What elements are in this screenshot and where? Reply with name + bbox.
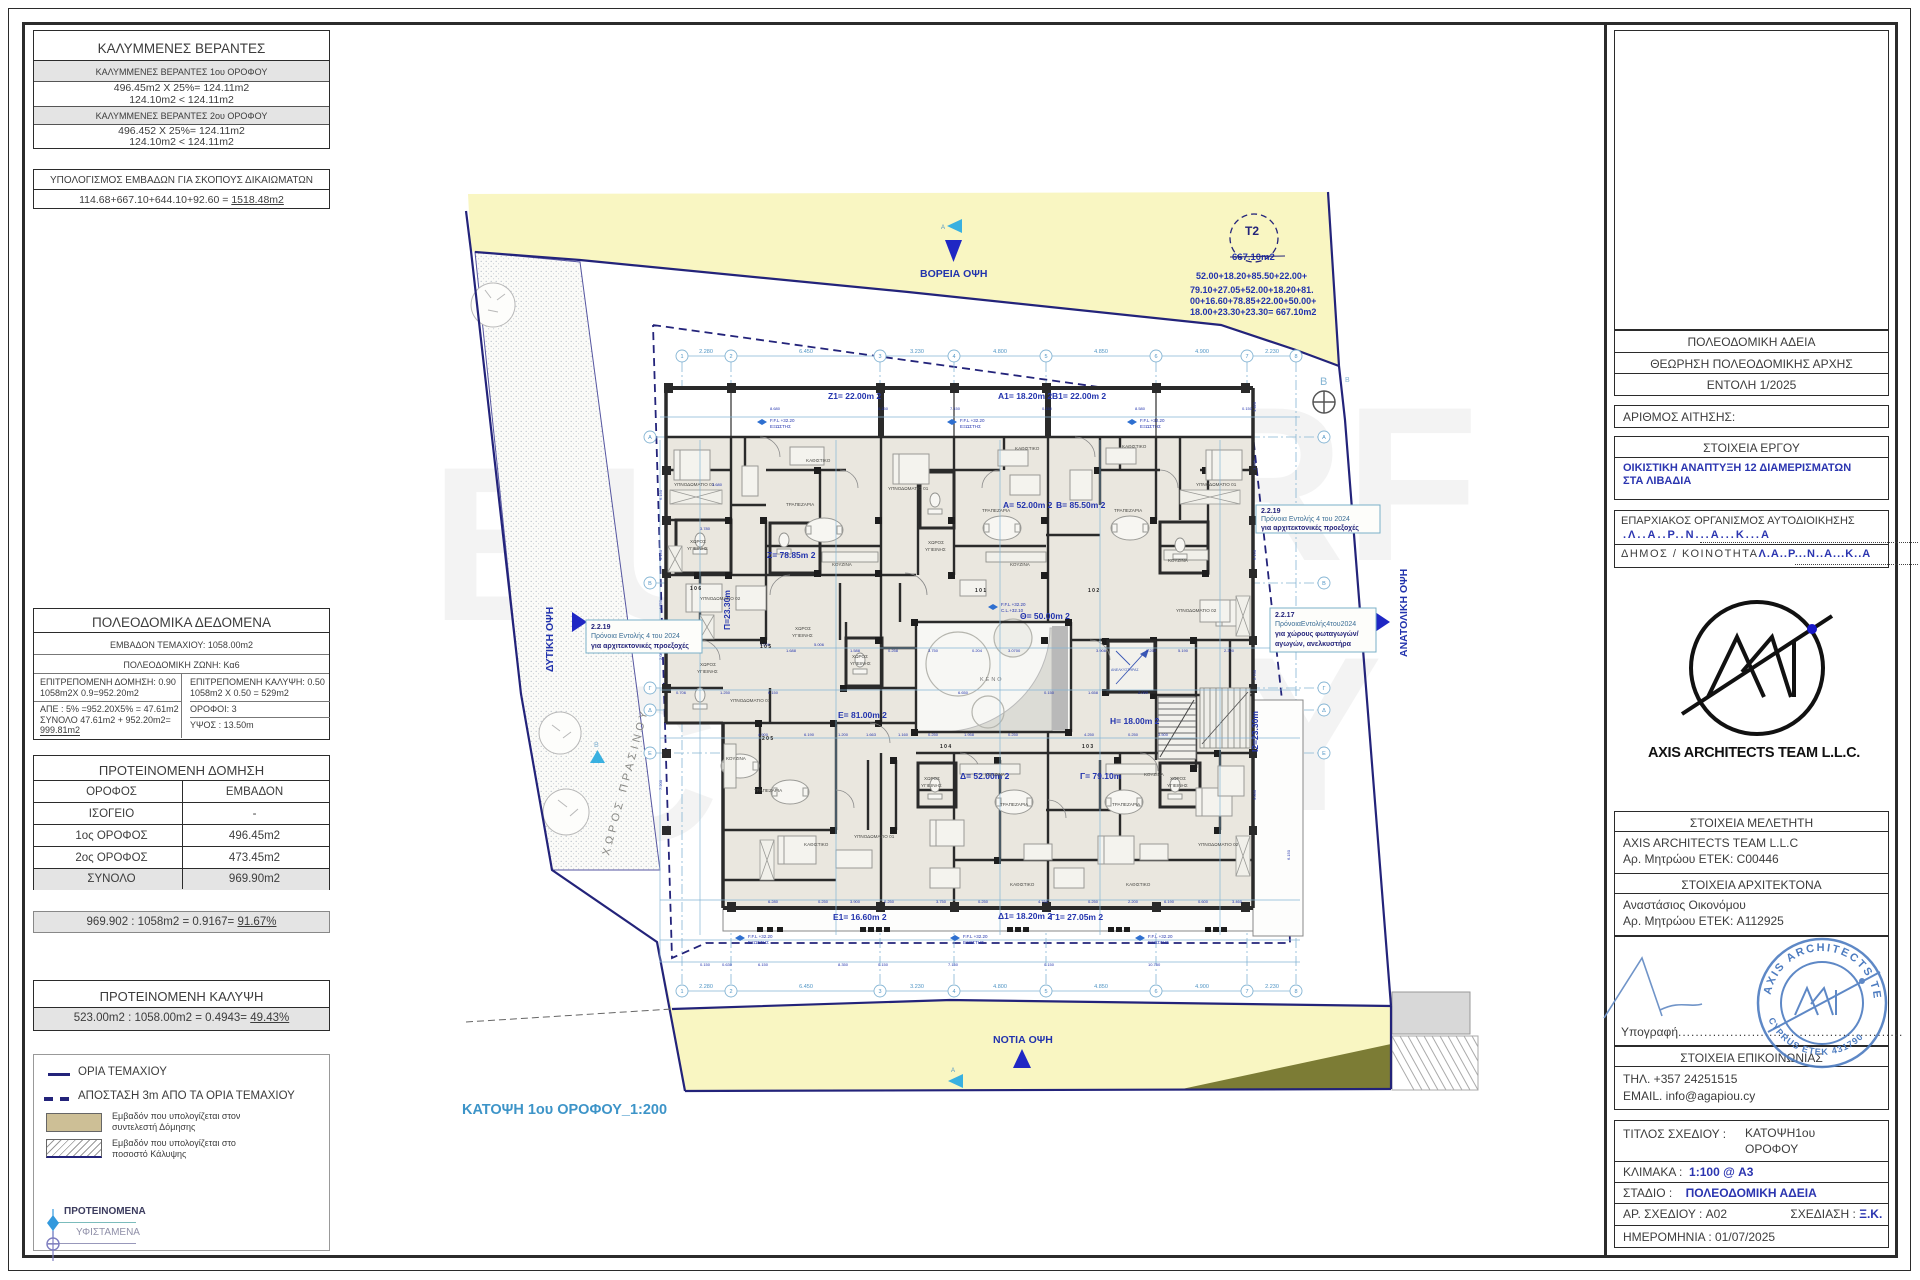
- svg-text:1.250: 1.250: [720, 690, 731, 695]
- svg-text:ΧΩΡΟΣ: ΧΩΡΟΣ: [700, 662, 716, 667]
- svg-text:Πρόνοια Εντολής 4 του 2024: Πρόνοια Εντολής 4 του 2024: [1261, 515, 1350, 523]
- svg-text:3: 3: [878, 354, 881, 360]
- svg-text:0.630: 0.630: [722, 962, 733, 967]
- svg-text:6.280: 6.280: [768, 899, 779, 904]
- svg-text:7: 7: [1245, 354, 1248, 360]
- svg-text:Γ: Γ: [648, 686, 651, 692]
- svg-text:4: 4: [952, 354, 955, 360]
- svg-text:3.908: 3.908: [1096, 648, 1107, 653]
- svg-text:ΚΑΘΙΣΤΙΚΟ: ΚΑΘΙΣΤΙΚΟ: [1122, 444, 1147, 449]
- svg-text:ΧΩΡΟΣ: ΧΩΡΟΣ: [928, 540, 944, 545]
- svg-text:0.150: 0.150: [878, 406, 889, 411]
- svg-text:για χώρους φωταγωγών/: για χώρους φωταγωγών/: [1275, 631, 1359, 638]
- svg-text:ΔΥΤΙΚΗ ΟΨΗ: ΔΥΤΙΚΗ ΟΨΗ: [544, 607, 556, 672]
- svg-text:00+16.60+78.85+22.00+50.00+: 00+16.60+78.85+22.00+50.00+: [1190, 296, 1316, 306]
- svg-text:ΚΑΘΙΣΤΙΚΟ: ΚΑΘΙΣΤΙΚΟ: [1015, 446, 1040, 451]
- svg-text:6.650: 6.650: [958, 690, 969, 695]
- svg-text:1: 1: [680, 989, 683, 995]
- svg-text:6.150: 6.150: [758, 962, 769, 967]
- svg-text:ΚΑΤΟΨΗ 1ου ΟΡΟΦΟΥ_1:200: ΚΑΤΟΨΗ 1ου ΟΡΟΦΟΥ_1:200: [462, 1102, 667, 1118]
- svg-text:4.850: 4.850: [1094, 349, 1108, 355]
- svg-text:Δ1= 18.20m 2: Δ1= 18.20m 2: [998, 911, 1052, 921]
- svg-text:2.280: 2.280: [699, 349, 713, 355]
- svg-text:2.2.19: 2.2.19: [591, 624, 611, 631]
- svg-text:3: 3: [878, 989, 881, 995]
- svg-text:ΥΠΝΟΔΩΜΑΤΙΟ 01: ΥΠΝΟΔΩΜΑΤΙΟ 01: [854, 834, 895, 839]
- svg-text:ΚΑΘΙΣΤΙΚΟ: ΚΑΘΙΣΤΙΚΟ: [1010, 882, 1035, 887]
- svg-text:0.250: 0.250: [928, 732, 939, 737]
- svg-text:B: B: [1320, 376, 1327, 388]
- svg-text:ΕΞΩΣΤΗΣ: ΕΞΩΣΤΗΣ: [960, 424, 981, 429]
- svg-text:1.420: 1.420: [1252, 401, 1257, 412]
- svg-text:3.750: 3.750: [936, 899, 947, 904]
- svg-text:ΥΓΙΕΙΝΗΣ: ΥΓΙΕΙΝΗΣ: [921, 783, 942, 788]
- svg-text:667.10m2: 667.10m2: [1232, 252, 1275, 263]
- svg-text:79.10+27.05+52.00+18.20+81.: 79.10+27.05+52.00+18.20+81.: [1190, 285, 1314, 295]
- svg-text:Z= 78.85m 2: Z= 78.85m 2: [767, 550, 816, 560]
- svg-text:B: B: [1345, 377, 1350, 384]
- svg-text:4.750: 4.750: [658, 599, 663, 610]
- svg-text:A: A: [1322, 435, 1326, 441]
- svg-text:0.150: 0.150: [700, 962, 711, 967]
- svg-text:6: 6: [1154, 989, 1157, 995]
- svg-text:1 0 3: 1 0 3: [1082, 744, 1093, 750]
- svg-text:3.230: 3.230: [910, 349, 924, 355]
- svg-text:2: 2: [729, 989, 732, 995]
- svg-text:5.190: 5.190: [1178, 648, 1189, 653]
- svg-text:0.250: 0.250: [1146, 648, 1157, 653]
- svg-text:ΕΞΩΣΤΗΣ: ΕΞΩΣΤΗΣ: [748, 940, 769, 945]
- svg-text:F.F.L +32.20: F.F.L +32.20: [963, 934, 988, 939]
- svg-text:1 0 6: 1 0 6: [690, 586, 701, 592]
- svg-text:A: A: [941, 225, 945, 231]
- svg-text:0.150: 0.150: [878, 962, 889, 967]
- svg-text:ΥΓΙΕΙΝΗΣ: ΥΓΙΕΙΝΗΣ: [687, 546, 708, 551]
- svg-text:E: E: [648, 751, 652, 757]
- svg-text:Γ1= 27.05m 2: Γ1= 27.05m 2: [1050, 912, 1103, 922]
- svg-text:0.204: 0.204: [972, 648, 983, 653]
- svg-text:4.760: 4.760: [1038, 899, 1049, 904]
- svg-text:1.658: 1.658: [1088, 690, 1099, 695]
- svg-text:8: 8: [1294, 354, 1297, 360]
- svg-text:3.500: 3.500: [1158, 732, 1169, 737]
- svg-text:A: A: [951, 1068, 955, 1074]
- svg-text:ΚΟΥΖΙΝΑ: ΚΟΥΖΙΝΑ: [832, 562, 853, 567]
- svg-text:0.706: 0.706: [676, 690, 687, 695]
- svg-text:Z1= 22.00m 2: Z1= 22.00m 2: [828, 391, 881, 401]
- svg-text:0.250: 0.250: [818, 899, 829, 904]
- svg-text:ΥΠΝΟΔΩΜΑΤΙΟ 02: ΥΠΝΟΔΩΜΑΤΙΟ 02: [1198, 842, 1239, 847]
- svg-text:6.190: 6.190: [1164, 899, 1175, 904]
- svg-text:F.F.L +32.20: F.F.L +32.20: [1140, 418, 1165, 423]
- svg-text:ΑΝΕΛΚΥΣΤΗΡΑΣ: ΑΝΕΛΚΥΣΤΗΡΑΣ: [1111, 668, 1139, 672]
- svg-text:6.150: 6.150: [768, 690, 779, 695]
- svg-text:0.600: 0.600: [1198, 899, 1209, 904]
- svg-text:2 0 5: 2 0 5: [762, 736, 773, 742]
- svg-text:E: E: [1322, 751, 1326, 757]
- svg-text:ΕΞΩΣΤΗΣ: ΕΞΩΣΤΗΣ: [963, 940, 984, 945]
- svg-text:3.460: 3.460: [1232, 899, 1243, 904]
- svg-text:E= 81.00m 2: E= 81.00m 2: [838, 710, 887, 720]
- svg-text:8.350: 8.350: [838, 962, 849, 967]
- svg-text:1.200: 1.200: [838, 732, 849, 737]
- svg-text:10.750: 10.750: [1148, 962, 1161, 967]
- svg-text:ΥΠΝΟΔΩΜΑΤΙΟ 01: ΥΠΝΟΔΩΜΑΤΙΟ 01: [1196, 482, 1237, 487]
- svg-text:2.230: 2.230: [1265, 984, 1279, 990]
- svg-text:0.258: 0.258: [888, 648, 899, 653]
- svg-text:4.800: 4.800: [993, 349, 1007, 355]
- svg-text:0.250: 0.250: [1088, 899, 1099, 904]
- svg-text:6.450: 6.450: [799, 984, 813, 990]
- svg-text:B= 85.50m 2: B= 85.50m 2: [1056, 500, 1106, 510]
- svg-text:F.F.L +32.20: F.F.L +32.20: [748, 934, 773, 939]
- svg-text:F.F.L +32.20: F.F.L +32.20: [960, 418, 985, 423]
- svg-text:ΚΟΥΖΙΝΑ: ΚΟΥΖΙΝΑ: [1168, 558, 1189, 563]
- svg-text:1 0 5: 1 0 5: [760, 644, 771, 650]
- svg-text:ΝΟΤΙΑ ΟΨΗ: ΝΟΤΙΑ ΟΨΗ: [993, 1034, 1053, 1046]
- svg-text:ΧΩΡΟΣ: ΧΩΡΟΣ: [924, 776, 940, 781]
- svg-text:2.230: 2.230: [1265, 349, 1279, 355]
- svg-text:4.900: 4.900: [1195, 984, 1209, 990]
- svg-text:8.680: 8.680: [770, 406, 781, 411]
- svg-text:0.250: 0.250: [978, 899, 989, 904]
- svg-text:3.230: 3.230: [910, 984, 924, 990]
- svg-text:1.588: 1.588: [850, 648, 861, 653]
- svg-text:2.200: 2.200: [1128, 899, 1139, 904]
- svg-text:ΥΠΝΟΔΩΜΑΤΙΟ 01: ΥΠΝΟΔΩΜΑΤΙΟ 01: [674, 482, 715, 487]
- svg-text:1.160: 1.160: [898, 732, 909, 737]
- svg-text:1.663: 1.663: [866, 732, 877, 737]
- svg-text:F.F.L +32.20: F.F.L +32.20: [1001, 602, 1026, 607]
- svg-text:3.900: 3.900: [850, 899, 861, 904]
- svg-text:3.750: 3.750: [928, 648, 939, 653]
- svg-text:H= 18.00m 2: H= 18.00m 2: [1110, 716, 1160, 726]
- svg-text:18.00+23.30+23.30= 667.10m2: 18.00+23.30+23.30= 667.10m2: [1190, 307, 1316, 317]
- svg-text:ΥΓΙΕΙΝΗΣ: ΥΓΙΕΙΝΗΣ: [925, 547, 946, 552]
- svg-text:52.00+18.20+85.50+22.00+: 52.00+18.20+85.50+22.00+: [1196, 271, 1307, 281]
- svg-text:αγωγών, ανελκυστήρα: αγωγών, ανελκυστήρα: [1275, 640, 1352, 648]
- svg-text:ΧΩΡΟΣ: ΧΩΡΟΣ: [690, 539, 706, 544]
- svg-text:Θ= 50.00m 2: Θ= 50.00m 2: [1020, 611, 1070, 621]
- svg-text:ΥΓΙΕΙΝΗΣ: ΥΓΙΕΙΝΗΣ: [792, 633, 813, 638]
- svg-text:3.780: 3.780: [700, 526, 711, 531]
- svg-text:3.0700: 3.0700: [1008, 648, 1021, 653]
- svg-text:7.150: 7.150: [950, 406, 961, 411]
- svg-text:0.250: 0.250: [1008, 732, 1019, 737]
- svg-text:ΠρόνοιαΕντολής4του2024: ΠρόνοιαΕντολής4του2024: [1275, 620, 1356, 628]
- svg-text:για αρχιτεκτονικές προεξοχές: για αρχιτεκτονικές προεξοχές: [1261, 525, 1359, 532]
- svg-text:ΧΩΡΟΣ: ΧΩΡΟΣ: [1170, 776, 1186, 781]
- svg-text:0.150: 0.150: [1042, 406, 1053, 411]
- svg-text:ΧΩΡΟΣ: ΧΩΡΟΣ: [795, 626, 811, 631]
- svg-text:1.958: 1.958: [964, 732, 975, 737]
- svg-text:ΤΡΑΠΕΖΑΡΙΑ: ΤΡΑΠΕΖΑΡΙΑ: [1114, 508, 1143, 513]
- svg-text:A= 52.00m 2: A= 52.00m 2: [1003, 500, 1053, 510]
- svg-text:ΧΩΡΟΣ: ΧΩΡΟΣ: [852, 654, 868, 659]
- svg-text:ΤΡΑΠΕΖΑΡΙΑ: ΤΡΑΠΕΖΑΡΙΑ: [982, 508, 1011, 513]
- svg-text:ΤΡΑΠΕΖΑΡΙΑ: ΤΡΑΠΕΖΑΡΙΑ: [1112, 802, 1141, 807]
- svg-text:1.688: 1.688: [786, 648, 797, 653]
- svg-text:8.580: 8.580: [1135, 406, 1146, 411]
- svg-text:Γ= 79.10m: Γ= 79.10m: [1080, 771, 1122, 781]
- svg-text:7.150: 7.150: [948, 962, 959, 967]
- svg-text:6.190: 6.190: [804, 732, 815, 737]
- svg-text:ΤΡΑΠΕΖΑΡΙΑ: ΤΡΑΠΕΖΑΡΙΑ: [786, 502, 815, 507]
- svg-text:1: 1: [680, 354, 683, 360]
- svg-text:ΕΞΩΣΤΗΣ: ΕΞΩΣΤΗΣ: [1148, 940, 1169, 945]
- svg-text:1 0 4: 1 0 4: [940, 744, 951, 750]
- svg-text:ΚΑΘΙΣΤΙΚΟ: ΚΑΘΙΣΤΙΚΟ: [806, 458, 831, 463]
- svg-text:6.150: 6.150: [1286, 849, 1291, 860]
- svg-text:ΥΠΝΟΔΩΜΑΤΙΟ 02: ΥΠΝΟΔΩΜΑΤΙΟ 02: [1176, 608, 1217, 613]
- svg-text:2.280: 2.280: [699, 984, 713, 990]
- svg-text:6.150: 6.150: [658, 489, 663, 500]
- svg-text:E1= 16.60m 2: E1= 16.60m 2: [833, 912, 887, 922]
- svg-text:T2: T2: [1245, 224, 1259, 238]
- svg-text:5: 5: [1044, 989, 1047, 995]
- svg-text:6: 6: [1154, 354, 1157, 360]
- svg-text:ΚΟΥΖΙΝΑ: ΚΟΥΖΙΝΑ: [726, 756, 747, 761]
- svg-text:ΑΝΑΤΟΛΙΚΗ ΟΨΗ: ΑΝΑΤΟΛΙΚΗ ΟΨΗ: [1398, 569, 1410, 657]
- svg-text:3.800: 3.800: [1252, 789, 1257, 800]
- svg-text:F.F.L +32.20: F.F.L +32.20: [770, 418, 795, 423]
- svg-text:4.900: 4.900: [1195, 349, 1209, 355]
- svg-text:4.250: 4.250: [1084, 732, 1095, 737]
- svg-text:Πρόνοια Εντολής 4 του 2024: Πρόνοια Εντολής 4 του 2024: [591, 632, 680, 640]
- svg-text:ΕΞΩΣΤΗΣ: ΕΞΩΣΤΗΣ: [770, 424, 791, 429]
- svg-text:ΚΟΥΖΙΝΑ: ΚΟΥΖΙΝΑ: [1010, 562, 1031, 567]
- svg-text:Γ: Γ: [1322, 686, 1325, 692]
- svg-text:ΚΑΘΙΣΤΙΚΟ: ΚΑΘΙΣΤΙΚΟ: [1126, 882, 1151, 887]
- svg-text:ΤΡΑΠΕΖΑΡΙΑ: ΤΡΑΠΕΖΑΡΙΑ: [754, 788, 783, 793]
- svg-text:2.2.17: 2.2.17: [1275, 612, 1295, 619]
- svg-text:8: 8: [1294, 989, 1297, 995]
- svg-text:ΚΑΘΙΣΤΙΚΟ: ΚΑΘΙΣΤΙΚΟ: [804, 842, 829, 847]
- svg-text:I2=23.30m: I2=23.30m: [1250, 711, 1260, 752]
- svg-text:0.250: 0.250: [1128, 732, 1139, 737]
- svg-text:0.150: 0.150: [658, 549, 663, 560]
- svg-text:6.190: 6.190: [1252, 549, 1257, 560]
- svg-text:0.150: 0.150: [1044, 690, 1055, 695]
- svg-text:2.300: 2.300: [1224, 648, 1235, 653]
- svg-text:4.850: 4.850: [1094, 984, 1108, 990]
- svg-text:5.006: 5.006: [814, 642, 825, 647]
- svg-text:ΥΓΙΕΙΝΗΣ: ΥΓΙΕΙΝΗΣ: [697, 669, 718, 674]
- svg-text:7: 7: [1245, 989, 1248, 995]
- svg-text:0.250: 0.250: [884, 899, 895, 904]
- svg-text:F.F.L +32.20: F.F.L +32.20: [1148, 934, 1173, 939]
- svg-text:ΕΞΩΣΤΗΣ: ΕΞΩΣΤΗΣ: [1140, 424, 1161, 429]
- svg-text:1 0 2: 1 0 2: [1088, 588, 1099, 594]
- svg-text:B: B: [594, 742, 599, 749]
- svg-text:ΚΟΥΖΙΝΑ: ΚΟΥΖΙΝΑ: [1144, 772, 1165, 777]
- svg-text:B: B: [648, 581, 652, 587]
- svg-text:ΥΠΝΟΔΩΜΑΤΙΟ 01: ΥΠΝΟΔΩΜΑΤΙΟ 01: [888, 486, 929, 491]
- svg-text:για αρχιτεκτονικές προεξοχές: για αρχιτεκτονικές προεξοχές: [591, 643, 689, 650]
- svg-text:ΥΠΝΟΔΩΜΑΤΙΟ 01: ΥΠΝΟΔΩΜΑΤΙΟ 01: [730, 698, 771, 703]
- svg-text:ΥΓΙΕΙΝΗΣ: ΥΓΙΕΙΝΗΣ: [850, 661, 871, 666]
- svg-text:Δ: Δ: [1322, 708, 1326, 714]
- svg-text:4.800: 4.800: [993, 984, 1007, 990]
- svg-text:5: 5: [1044, 354, 1047, 360]
- svg-text:2.069: 2.069: [1138, 690, 1149, 695]
- svg-text:A: A: [648, 435, 652, 441]
- svg-text:ΒΟΡΕΙΑ ΟΨΗ: ΒΟΡΕΙΑ ΟΨΗ: [920, 268, 987, 280]
- svg-text:3.680: 3.680: [712, 482, 723, 487]
- svg-text:0.150: 0.150: [1044, 962, 1055, 967]
- svg-text:B1= 22.00m 2: B1= 22.00m 2: [1052, 391, 1106, 401]
- svg-text:ΚΟΥΖΙΝΑ: ΚΟΥΖΙΝΑ: [985, 772, 1006, 777]
- svg-text:ΥΠΝΟΔΩΜΑΤΙΟ 02: ΥΠΝΟΔΩΜΑΤΙΟ 02: [700, 596, 741, 601]
- svg-text:6.450: 6.450: [799, 349, 813, 355]
- svg-text:7.200: 7.200: [658, 779, 663, 790]
- svg-text:4: 4: [952, 989, 955, 995]
- svg-text:A1= 18.20m 2: A1= 18.20m 2: [998, 391, 1052, 401]
- svg-text:2.2.19: 2.2.19: [1261, 508, 1281, 515]
- svg-text:2: 2: [729, 354, 732, 360]
- svg-text:2.700: 2.700: [1252, 669, 1257, 680]
- svg-text:ΥΓΙΕΙΝΗΣ: ΥΓΙΕΙΝΗΣ: [1167, 783, 1188, 788]
- svg-text:ΤΡΑΠΕΖΑΡΙΑ: ΤΡΑΠΕΖΑΡΙΑ: [1000, 802, 1029, 807]
- svg-text:1 0 1: 1 0 1: [975, 588, 986, 594]
- svg-text:3.225: 3.225: [1252, 459, 1257, 470]
- svg-text:B: B: [1322, 581, 1326, 587]
